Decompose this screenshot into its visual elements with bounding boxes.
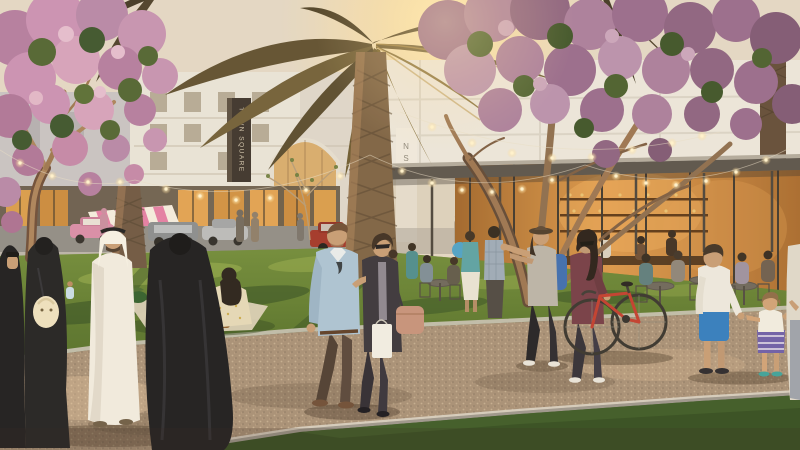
scene-canvas: TOWN SQUARE NSH: [0, 0, 800, 450]
warm-tint: [0, 0, 800, 450]
park-rendering-scene: Dusk architectural rendering of a landsc…: [0, 0, 800, 450]
